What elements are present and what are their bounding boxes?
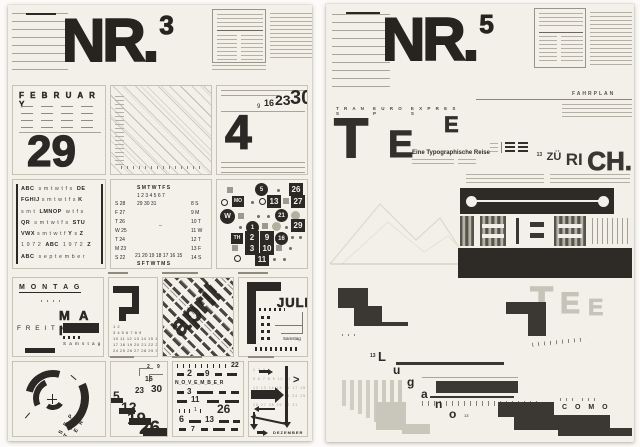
masthead-form [12, 13, 68, 77]
calendar-figure: u [393, 364, 400, 376]
tee-letter-e2: E [444, 116, 459, 134]
calendar-figure: 21 20 19 18 17 16 15 [135, 254, 182, 259]
calendar-mark [201, 428, 208, 431]
tick-arc [532, 337, 586, 347]
train-middle-band [460, 216, 632, 246]
calendar-figure: T 24 [115, 238, 125, 243]
dot-column [267, 316, 270, 340]
imprint-paragraph [270, 13, 312, 59]
smallprint-paragraph [550, 174, 630, 184]
panel-staircase: 291623305121926 [110, 361, 168, 437]
photo-of-two-posters: NR.3 F E B R U A R Y 29 4 916 [0, 0, 640, 447]
weekday-letters: s m t w t f s [34, 186, 76, 192]
calendar-mark [272, 222, 281, 231]
calendar-figure: 27 [291, 195, 305, 208]
imprint-col-left [539, 36, 557, 64]
weekday-letters: 1 9 7 2 [59, 242, 87, 248]
tee-subtitle: Eine Typographische Reise [412, 150, 490, 156]
calendar-mark [239, 226, 242, 229]
imprint-paragraph [590, 12, 632, 66]
calendar-mark [197, 391, 213, 394]
calendar-mark [179, 409, 180, 413]
step-ledge [380, 322, 408, 326]
calendar-figure: 16 [275, 232, 288, 245]
striped-letter-block [554, 216, 586, 246]
time-figures [560, 398, 576, 401]
calendar-mark [227, 187, 233, 193]
imprint-box [534, 8, 586, 68]
route-hairline [422, 377, 518, 378]
calendar-mark [262, 223, 268, 229]
calendar-figure: S F T W T M S [137, 262, 170, 267]
masthead-rule [346, 12, 380, 14]
calendar-mark [207, 364, 208, 368]
calendar-figure: 11 [255, 253, 269, 266]
masthead-rule [26, 13, 56, 15]
calendar-mark [285, 226, 288, 229]
right-arrow-icon [259, 370, 268, 373]
imprint-col-right [561, 36, 583, 64]
smallprint-paragraph [466, 174, 544, 184]
calendar-figure: 16 [145, 376, 153, 383]
calendar-figure: F 27 [115, 211, 125, 216]
calendar-mark [238, 213, 244, 219]
panel-september-spiral: S E P T E M B E R [12, 361, 106, 437]
alphabet-letters: DE [77, 186, 86, 192]
poster-title: NR.5 [382, 10, 494, 70]
alphabet-letters: STU [73, 220, 86, 226]
calendar-figure: 2 [147, 365, 150, 370]
calendar-figure: 16 [264, 99, 274, 108]
calendar-mark [183, 364, 184, 368]
juni-number-grid: 1 23 4 5 6 7 8 910 11 12 13 14 15 1617 1… [113, 324, 157, 354]
calendar-figure: S 22 [115, 256, 125, 261]
fahrplan-rule [476, 99, 632, 100]
alphabet-left-rule [16, 184, 18, 264]
rule [221, 95, 279, 96]
alphabet-letters: K [78, 197, 82, 203]
calendar-mark [289, 247, 292, 250]
calendar-mark [283, 258, 286, 261]
rule [221, 172, 305, 173]
calendar-figure: 2 [187, 369, 192, 378]
weekday-letters: w t f s [62, 209, 84, 215]
caption-bar [110, 356, 134, 358]
calendar-figure: M 23 [115, 247, 126, 252]
calendar-mark [251, 201, 254, 204]
calendar-mark [177, 400, 187, 403]
weekday-letters: s [72, 231, 79, 237]
calendar-mark [215, 373, 222, 376]
step-block [338, 288, 368, 308]
calendar-mark [213, 428, 225, 431]
gray-stripe [366, 380, 370, 418]
big-right-arrow-icon [251, 390, 275, 399]
tee-gray-e2: E [588, 298, 603, 316]
calendar-figure: 13 F [191, 247, 201, 252]
dot-row [255, 347, 297, 351]
left-arrow-icon [259, 408, 275, 410]
calendar-figure: 30 [151, 385, 162, 395]
samstag-label: S a m s t a g [63, 341, 101, 346]
time-figures [582, 398, 598, 401]
calendar-figure: MO [232, 196, 244, 207]
zurich-sup: 13 [537, 152, 543, 158]
panel-ring-calendar: S M T W T F S1 2 3 4 5 6 729 30 31S 28F … [110, 179, 212, 269]
letter-slot [482, 224, 504, 228]
divider-bar [516, 218, 519, 244]
calendar-mark [234, 255, 241, 262]
calendar-mark [213, 364, 214, 368]
calendar-figure: 7 [191, 426, 195, 433]
pipe-segment [119, 307, 126, 321]
small-down-arrow-icon [253, 412, 255, 424]
title-text: NR. [62, 7, 156, 74]
big-down-arrow-icon [285, 366, 288, 422]
freitag-block [63, 323, 99, 333]
squiggle [342, 334, 358, 336]
route-bar [396, 362, 504, 365]
juli-vertical-bar [247, 282, 256, 344]
calendar-mark [299, 236, 302, 239]
calendar-mark [231, 391, 239, 394]
alphabet-letters: ABC [21, 186, 34, 192]
calendar-figure: – [159, 224, 162, 229]
panel-april-stripes: april [162, 277, 234, 357]
alphabet-letters: ABC [45, 242, 58, 248]
calendar-mark [273, 258, 276, 261]
alphabet-letters: LMNOP [39, 209, 61, 215]
calendar-mark [177, 373, 184, 376]
equals-bar [530, 233, 544, 238]
calendar-mark [231, 428, 238, 431]
alphabet-letters: VWX [21, 231, 35, 237]
weekday-letters: s m t w t f s [30, 220, 72, 226]
calendar-mark [197, 373, 204, 376]
zurich-zu: ZÜ [547, 151, 562, 163]
calendar-figure: 9 [205, 370, 209, 378]
caption-bar [172, 356, 202, 358]
alphabet-row: QR s m t w t f s STU [21, 218, 99, 229]
black-bar [25, 348, 55, 353]
calendar-figure: 11 W [191, 229, 202, 234]
hairline-stripe-group [592, 218, 632, 244]
alphabet-rows: ABC s m t w t f s DEFGHIJ s m t w t f s … [21, 184, 99, 263]
subtitle-smallprint [412, 159, 454, 167]
striped-letter-block [480, 216, 506, 246]
tee-letter-t: T [334, 116, 368, 161]
weekday-letters: s m t w t f [35, 231, 68, 237]
train-top-bar [460, 188, 614, 214]
calendar-figure: g [407, 376, 414, 388]
calendar-mark [233, 420, 240, 423]
calendar-mark [232, 245, 238, 251]
calendar-figure: L [378, 350, 386, 363]
timetable-mini [562, 104, 632, 117]
alphabet-row: ABC s m t w t f s DE [21, 184, 99, 195]
letter-slot [558, 224, 582, 228]
caption-bar [162, 272, 198, 274]
gray-stripe [358, 380, 362, 414]
panel-alphabet-calendar: ABC s m t w t f s DEFGHIJ s m t w t f s … [12, 179, 106, 269]
calendar-figure: n [435, 398, 442, 410]
calendar-figure: 23 [275, 93, 291, 107]
calendar-figure: 5 [113, 390, 120, 402]
dark-step [528, 302, 546, 336]
calendar-figure: 9 [257, 104, 260, 110]
dezember-label: DEZEMBER [273, 430, 303, 435]
tee-letter-e1: E [388, 130, 413, 160]
poster-nr5: NR.5 FAHRPLAN T R A N SE U R O PE X P R … [326, 4, 634, 442]
alphabet-letters: Z [87, 242, 91, 248]
spiral-center-tick [47, 399, 57, 400]
gray-stripe [350, 380, 354, 410]
squiggle [41, 300, 65, 302]
alphabet-row: 1 9 7 2 ABC 1 9 7 2 Z [21, 240, 99, 251]
calendar-mark [189, 409, 190, 413]
poster-nr3: NR.3 F E B R U A R Y 29 4 916 [8, 5, 312, 441]
calendar-mark [227, 373, 237, 376]
small-right-arrow-icon [257, 431, 263, 434]
alphabet-letters: FGHIJ [21, 197, 40, 203]
striped-letter-block [460, 216, 474, 246]
caption-bar [108, 272, 128, 274]
panel-number-badges: 526MO1327W21129TH291631011 [216, 179, 308, 269]
panel-juli: JULI Samstag [238, 277, 308, 357]
calendar-figure: 9 [157, 365, 160, 370]
letter-slot [482, 234, 504, 238]
calendar-figure: W [220, 209, 235, 224]
juli-top-bar [247, 282, 281, 291]
calendar-mark [177, 364, 178, 368]
panel-november: 2229N_O_V_E_M_B_E_R3111266137 [172, 361, 244, 437]
subtitle-smallprint [458, 159, 476, 167]
february-day: 29 [27, 130, 76, 174]
alphabet-row: s m t LMNOP w t f s [21, 207, 99, 218]
calendar-mark [219, 420, 229, 423]
calendar-figure: 26 [217, 403, 230, 415]
zurich-wordmark: 13 ZÜ RI CH. [492, 136, 632, 167]
panel-montag-mai: M O N T A G M A I F R E I T A G S a m s … [12, 277, 104, 357]
calendar-mark [225, 364, 226, 368]
calendar-figure: 8 S [191, 202, 199, 207]
title-number: 3 [159, 10, 173, 40]
gray-stripe [342, 380, 346, 406]
calendar-mark [267, 215, 270, 218]
calendar-mark [200, 409, 201, 413]
calendar-figure: 21 [275, 209, 288, 222]
calendar-figure: 13 [464, 414, 468, 418]
calendar-figure: 29 [291, 219, 305, 232]
alphabet-row: VWX s m t w t f Y s Z [21, 229, 99, 240]
calendar-figure: 13 [267, 195, 281, 208]
calendar-mark [291, 236, 294, 239]
alphabet-right-rule [101, 184, 103, 264]
calendar-mark [277, 189, 280, 192]
calendar-figure: N_O_V_E_M_B_E_R [175, 381, 223, 386]
poster-title: NR.3 [62, 11, 174, 71]
squiggle [43, 356, 63, 357]
dots-bottom-ticks [121, 166, 205, 169]
calendar-figure: 13 [205, 416, 214, 424]
dot-column [261, 316, 264, 340]
zurich-ch: CH. [587, 146, 632, 177]
calendar-mark [257, 215, 260, 218]
calendar-figure: 12 T [191, 238, 201, 243]
imprint-lines [539, 13, 583, 29]
calendar-mark [259, 198, 266, 205]
letter-slot [558, 234, 582, 238]
calendar-figure: TH [231, 233, 243, 244]
imprint-col-left [217, 35, 237, 60]
route-bar-thick [436, 381, 518, 393]
calendar-mark [179, 428, 186, 431]
calendar-figure: W 25 [115, 229, 127, 234]
calendar-figure: 29 30 31 [137, 202, 156, 207]
montag-label: M O N T A G [19, 284, 81, 293]
calendar-mark [201, 364, 202, 368]
text-line: E U R O P [373, 106, 411, 116]
panel-dezember-arrows: 1 2 3 45 6 7 8 9 10 1112 13 14 15 16 17 … [248, 361, 308, 437]
calendar-figure: 1 2 3 4 5 6 7 [137, 194, 165, 199]
imprint-divider [217, 30, 263, 31]
juli-samstag: Samstag [283, 336, 301, 341]
step-outline [281, 320, 303, 334]
week-big-number: 4 [225, 110, 252, 158]
calendar-figure: 23 [135, 387, 144, 395]
dots-axis-labels [115, 96, 124, 166]
calendar-figure: 9 M [191, 211, 199, 216]
train-connector-line [476, 200, 600, 202]
rule [221, 162, 305, 163]
alphabet-letters: ABC [21, 254, 34, 260]
weekday-letters: s m t [21, 209, 39, 215]
caption-bar [248, 356, 274, 358]
calendar-mark [195, 364, 196, 368]
imprint-box [212, 9, 266, 63]
fahrplan-label: FAHRPLAN [572, 91, 615, 97]
calendar-mark [189, 420, 201, 423]
calendar-figure: S 28 [115, 202, 125, 207]
text-line: 24 25 26 27 28 29 30 [113, 348, 157, 354]
dot-row [63, 336, 83, 339]
como-label: C O M O [562, 404, 611, 411]
train-bottom-bar [458, 248, 632, 278]
calendar-figure: 26 [139, 419, 160, 437]
alphabet-row: FGHIJ s m t w t f s K [21, 195, 99, 206]
calendar-figure: a [421, 388, 428, 400]
calendar-figure: 11 [191, 396, 199, 404]
route-line [430, 396, 514, 398]
calendar-figure: S M T W T F S [137, 186, 170, 191]
calendar-mark [276, 245, 282, 251]
weekday-letters: s m t w t f s [40, 197, 78, 203]
dot-row [259, 308, 285, 311]
title-number: 5 [479, 9, 493, 39]
calendar-mark [184, 409, 185, 413]
zurich-ri: RI [566, 150, 583, 170]
chevron-right-icon: > [293, 374, 299, 386]
calendar-mark [219, 391, 226, 394]
calendar-figure: T 26 [115, 220, 125, 225]
calendar-figure: 1 [194, 408, 197, 413]
panel-february: F E B R U A R Y 29 [12, 85, 106, 175]
calendar-mark [221, 199, 228, 206]
title-text: NR. [382, 6, 476, 73]
imprint-lines [217, 14, 263, 28]
calendar-figure: 30 [290, 88, 308, 108]
gray-step-block [402, 424, 430, 434]
imprint-col-right [241, 35, 263, 60]
calendar-figure: 14 S [191, 256, 201, 261]
calendar-mark [177, 391, 184, 394]
alphabet-letters: QR [21, 220, 30, 226]
calendar-mark [219, 364, 220, 368]
alphabet-row: ABC s e p t e m b e r [21, 252, 99, 263]
calendar-figure: o [449, 408, 456, 420]
step-block [354, 306, 382, 326]
equals-bar [530, 222, 544, 227]
weekday-letters: s e p t e m b e r [34, 254, 85, 260]
lugano-como-section: T E E [326, 280, 634, 438]
weekday-letters: 1 9 7 2 [21, 242, 45, 248]
calendar-figure: 22 [231, 362, 239, 369]
panel-diagonal-dots [110, 85, 212, 175]
calendar-figure: 10 T [191, 220, 201, 225]
tee-gray-e1: E [560, 292, 580, 316]
pipe-segment [132, 293, 139, 307]
caption-bar [238, 272, 268, 274]
pipe-segment [113, 286, 139, 293]
calendar-figure: 13 [370, 354, 376, 359]
alphabet-letters: Z [80, 231, 84, 237]
panel-juni-pipe: 1 23 4 5 6 7 8 910 11 12 13 14 15 1617 1… [108, 277, 158, 357]
calendar-figure: 6 [179, 415, 184, 424]
imprint-divider [539, 32, 583, 33]
panel-week-4: 4 9162330 [216, 85, 308, 175]
rule [221, 167, 305, 168]
mountain-outline-graphic [326, 176, 476, 272]
imprint-footer [212, 65, 266, 71]
calendar-mark [283, 198, 289, 204]
como-step [558, 428, 632, 436]
